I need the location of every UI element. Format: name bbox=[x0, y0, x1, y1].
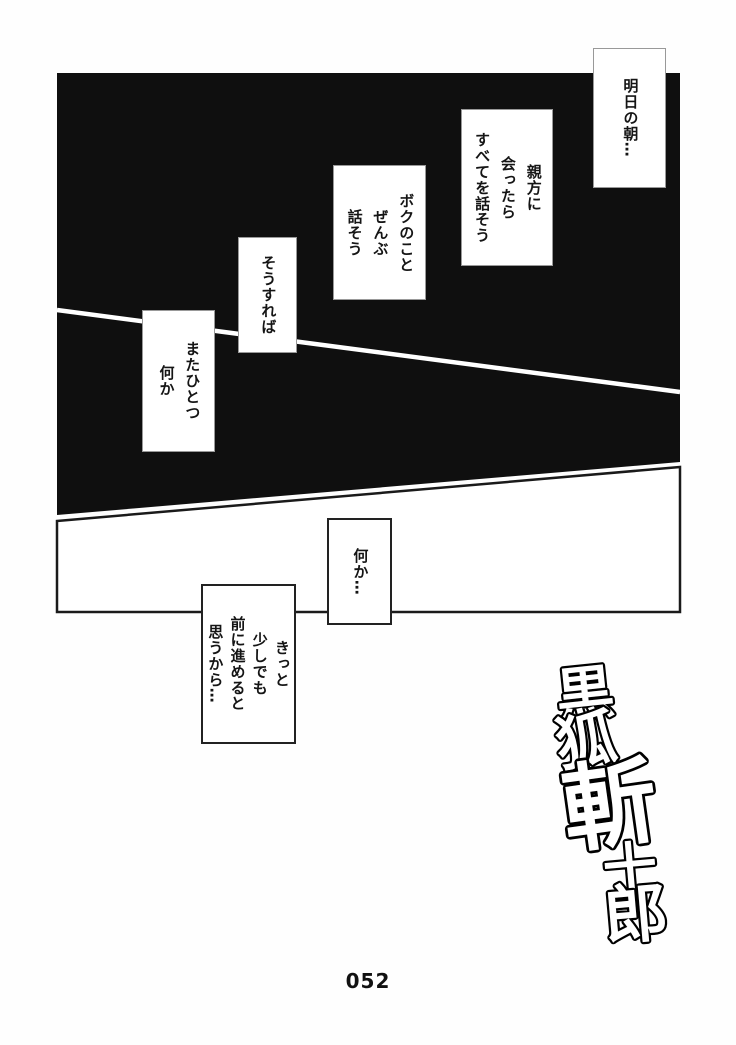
speech-bubble-move-forward: きっと 少しでも 前に進めると 思うから… bbox=[201, 584, 296, 744]
manga-page: 明日の朝… 親方に 会ったら すべてを話そう ボクのこと ぜんぶ 話そう そうす… bbox=[0, 0, 736, 1045]
speech-text: そうすれば bbox=[255, 255, 281, 335]
speech-text: 明日の朝… bbox=[617, 78, 643, 158]
speech-bubble-tell-everything: ボクのこと ぜんぶ 話そう bbox=[333, 165, 426, 300]
speech-text: またひとつ 何か bbox=[153, 341, 205, 421]
speech-bubble-one-more-something: またひとつ 何か bbox=[142, 310, 215, 452]
series-logo-calligraphy: 黒 狐 斬 十 郎 bbox=[525, 650, 695, 960]
speech-bubble-something: 何か… bbox=[327, 518, 392, 625]
speech-text: 何か… bbox=[347, 548, 373, 596]
speech-bubble-meet-master: 親方に 会ったら すべてを話そう bbox=[461, 109, 553, 266]
speech-text: 親方に 会ったら すべてを話そう bbox=[468, 132, 545, 243]
speech-bubble-if-so: そうすれば bbox=[238, 237, 297, 353]
logo-char-rou: 郎 bbox=[601, 875, 671, 955]
speech-text: きっと 少しでも 前に進めると 思うから… bbox=[204, 616, 293, 711]
page-number: 052 bbox=[0, 969, 736, 993]
speech-text: ボクのこと ぜんぶ 話そう bbox=[341, 193, 418, 273]
speech-bubble-tomorrow-morning: 明日の朝… bbox=[593, 48, 666, 188]
